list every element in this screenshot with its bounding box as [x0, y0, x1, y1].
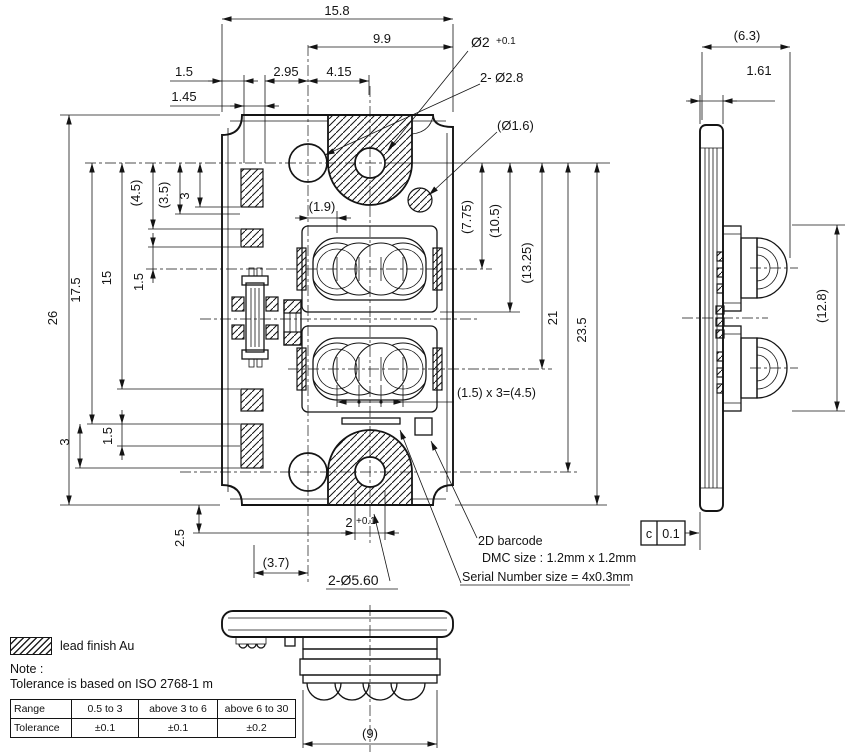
tolerance-table: Range 0.5 to 3 above 3 to 6 above 6 to 3… [10, 699, 296, 738]
dim-2: 2 [345, 515, 352, 530]
callout-2d-barcode: 2D barcode [478, 534, 543, 548]
dim-1-5-lower: 1.5 [100, 427, 115, 445]
range-col3: above 6 to 30 [218, 700, 296, 719]
table-row-range: Range 0.5 to 3 above 3 to 6 above 6 to 3… [11, 700, 296, 719]
dim-6-3: (6.3) [734, 28, 761, 43]
dim-13-25: (13.25) [519, 242, 534, 283]
callout-hole-dia-tol: +0.1 [496, 36, 516, 47]
slit-feature [284, 300, 301, 345]
range-col1: 0.5 to 3 [72, 700, 139, 719]
note-title: Note : [10, 662, 43, 676]
dim-12-8: (12.8) [814, 289, 829, 323]
dim-4-5: (4.5) [128, 180, 143, 207]
dim-2-5: 2.5 [172, 529, 187, 547]
dim-15: 15 [99, 271, 114, 285]
callout-serial-size: Serial Number size = 4x0.3mm [462, 570, 633, 584]
dim-3-top: 3 [177, 192, 192, 199]
legend: lead finish Au [10, 637, 134, 655]
barcode-square [415, 418, 432, 435]
table-row-tolerance: Tolerance ±0.1 ±0.1 ±0.2 [11, 719, 296, 738]
hole-1-6 [408, 188, 432, 212]
dim-21: 21 [545, 311, 560, 325]
dim-1-5-top: 1.5 [175, 64, 193, 79]
note-text: Tolerance is based on ISO 2768-1 m [10, 677, 213, 691]
dim-2-95: 2.95 [273, 64, 298, 79]
range-col2: above 3 to 6 [139, 700, 218, 719]
dim-10-5: (10.5) [487, 204, 502, 238]
callout-lug-dia: 2-Ø5.60 [328, 572, 379, 588]
side-module-top [717, 226, 787, 311]
callout-hole-dia: Ø2 [471, 34, 490, 50]
side-view: (6.3) 1.61 (12.8) c 0.1 [641, 28, 845, 550]
dim-3-7: (3.7) [263, 555, 290, 570]
datum-letter: c [646, 527, 652, 541]
front-left-dimensions: 26 17.5 15 (4.5) (3.5) 3 1.5 1.5 3 2.5 [45, 115, 240, 547]
dim-1-45: 1.45 [171, 89, 196, 104]
dim-26: 26 [45, 311, 60, 325]
dim-1-5-upper: 1.5 [131, 273, 146, 291]
serial-number-area [342, 418, 400, 424]
dim-9-9: 9.9 [373, 31, 391, 46]
tolerance-col3: ±0.2 [218, 719, 296, 738]
dim-7-75: (7.75) [459, 200, 474, 234]
dim-17-5: 17.5 [68, 277, 83, 302]
datum-frame: c 0.1 [641, 521, 699, 545]
dim-1-61: 1.61 [746, 63, 771, 78]
barcode-callouts: 2D barcode DMC size : 1.2mm x 1.2mm Seri… [400, 430, 636, 585]
hatch-swatch [10, 637, 52, 655]
legend-label: lead finish Au [60, 639, 134, 653]
dim-2-tol: +0.1 [356, 516, 376, 527]
dim-3-5: (3.5) [156, 182, 171, 209]
bottom-plate [222, 611, 453, 637]
lead-pads [241, 169, 263, 468]
tolerance-col1: ±0.1 [72, 719, 139, 738]
dim-3-bot: 3 [57, 438, 72, 445]
dim-15-8: 15.8 [324, 3, 349, 18]
side-module-bottom [717, 326, 787, 411]
dim-4-15: 4.15 [326, 64, 351, 79]
callout-hole-1-6: (Ø1.6) [497, 118, 534, 133]
lug-fillet [412, 116, 433, 134]
dim-9: (9) [362, 726, 378, 741]
side-connector-nubs [716, 306, 724, 338]
center-connector [232, 268, 278, 367]
tolerance-label: Tolerance [11, 719, 72, 738]
dim-1-9: (1.9) [309, 199, 336, 214]
callout-dmc-size: DMC size : 1.2mm x 1.2mm [482, 551, 636, 565]
bottom-connector-bumps [236, 637, 295, 648]
front-right-dimensions: (7.75) (10.5) (13.25) 21 23.5 [392, 163, 610, 505]
datum-value: 0.1 [662, 527, 679, 541]
dim-lens-pitch: (1.5) x 3=(4.5) [457, 386, 536, 400]
engineering-drawing-page: 15.8 9.9 1.5 2.95 4.15 1.45 Ø2 +0.1 2- Ø… [0, 0, 850, 756]
range-label: Range [11, 700, 72, 719]
dim-23-5: 23.5 [574, 317, 589, 342]
callout-holes-2-8: 2- Ø2.8 [480, 70, 523, 85]
tolerance-col2: ±0.1 [139, 719, 218, 738]
